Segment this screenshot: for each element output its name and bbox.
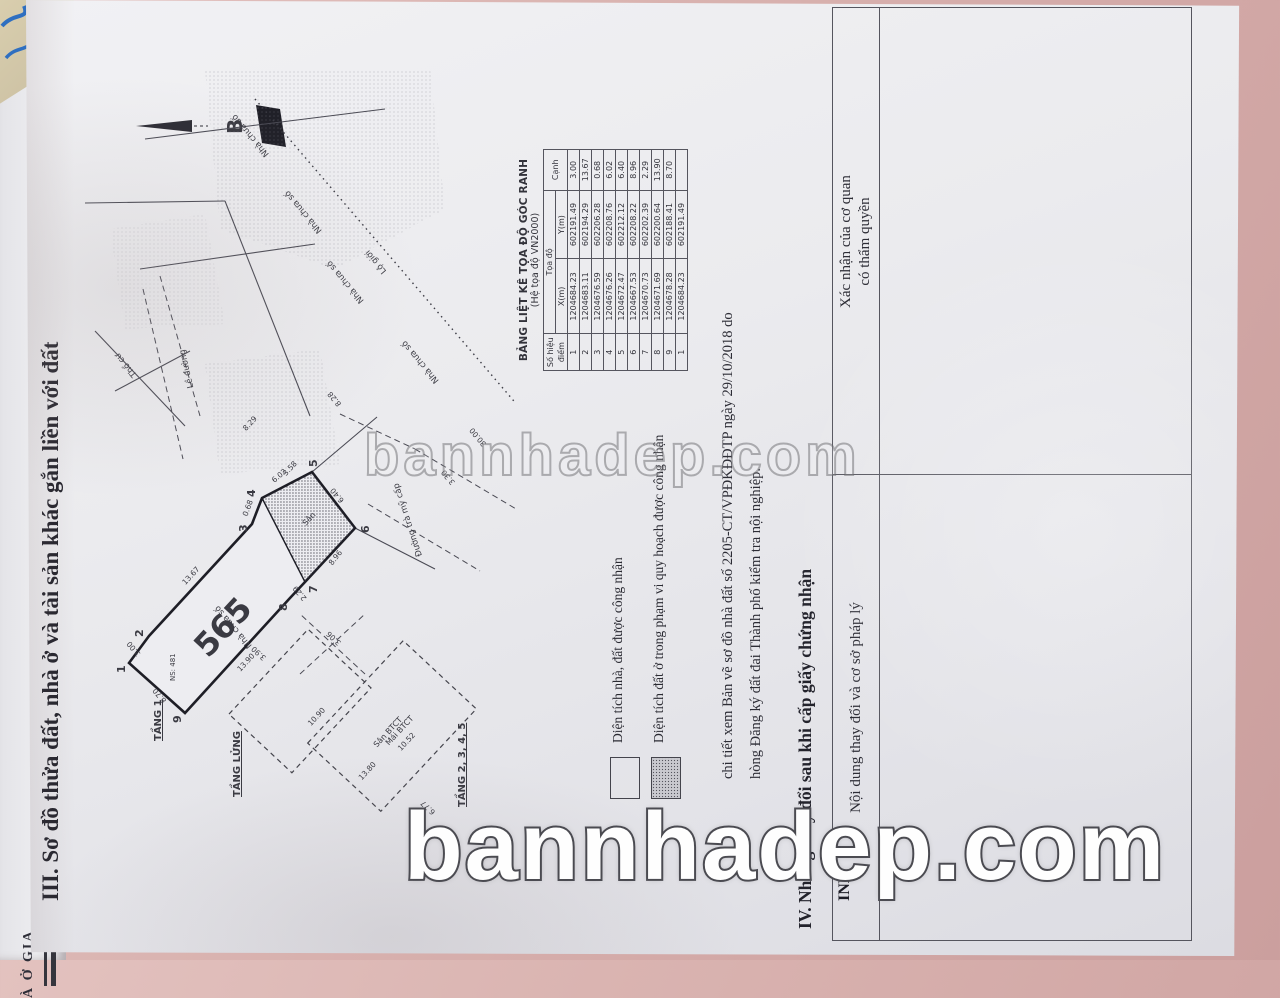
y-coordinate: 602206.28 — [592, 190, 604, 259]
y-coordinate: 602208.22 — [628, 190, 640, 259]
svg-text:7: 7 — [307, 585, 320, 593]
y-coordinate: 602202.39 — [640, 190, 652, 259]
y-coordinate: 602200.64 — [652, 190, 664, 259]
label-tang1: TẦNG 1 — [150, 699, 164, 741]
edge-length: 8.70 — [664, 150, 676, 191]
edge-length: 6.40 — [616, 150, 628, 191]
edge-length: 2.29 — [640, 150, 652, 191]
edge-length: 13.90 — [652, 150, 664, 191]
coordinate-row: 7 1204670.73 602202.39 2.29 — [640, 150, 652, 371]
edge-length: 8.96 — [628, 150, 640, 191]
svg-text:10.90: 10.90 — [306, 706, 327, 728]
edge-length: 6.02 — [604, 150, 616, 191]
x-coordinate: 1204672.47 — [616, 259, 628, 334]
section-iv-heading: IV. Những thay đổi sau khi cấp giấy chứn… — [795, 569, 816, 929]
edge-length: 0.68 — [592, 150, 604, 191]
label-nha-chua-so: Nhà chưa số — [324, 258, 367, 306]
coordinate-row: 8 1204671.69 602200.64 13.90 — [652, 150, 664, 371]
note-line2: hòng Đăng ký đất đai Thành phố kiểm tra … — [742, 119, 770, 779]
y-coordinate: 602191.49 — [676, 190, 688, 259]
point-id: 3 — [592, 334, 604, 371]
right-header-line2: có thẩm quyền — [856, 175, 875, 308]
coordinate-table-subtitle: (Hệ tọa độ VN2000) — [530, 149, 541, 371]
edge-length: 3.00 — [568, 150, 580, 191]
legend: Diện tích nhà, đất được công nhận Diện t… — [608, 379, 690, 799]
changes-col-right-header: Xác nhận của cơ quan có thẩm quyền — [833, 8, 879, 475]
svg-text:0.68: 0.68 — [241, 498, 255, 517]
point-id: 1 — [676, 334, 688, 371]
point-id: 8 — [652, 334, 664, 371]
x-coordinate: 1204678.28 — [664, 259, 676, 334]
coordinate-row: 5 1204672.47 602212.12 6.40 — [616, 150, 628, 371]
svg-text:6: 6 — [359, 525, 372, 533]
point-id: 2 — [580, 334, 592, 371]
svg-text:9: 9 — [171, 715, 184, 723]
svg-text:4: 4 — [245, 489, 258, 497]
col-header-y: Y(m) — [556, 190, 568, 259]
svg-text:3.06: 3.06 — [324, 629, 343, 647]
legend-swatch-plain — [610, 757, 640, 799]
coordinate-row: 9 1204678.28 602188.41 8.70 — [664, 150, 676, 371]
col-header-point: Số hiệu điểm — [544, 334, 568, 371]
label-ns481: NS: 481 — [169, 653, 177, 681]
point-id: 6 — [628, 334, 640, 371]
label-tho-cu: Thổ cư — [112, 350, 140, 380]
stipple-block — [205, 69, 445, 269]
svg-text:1: 1 — [115, 665, 128, 673]
edge-length: 13.67 — [580, 150, 592, 191]
svg-text:8: 8 — [277, 603, 290, 611]
coordinate-rows: 1 1204684.23 602191.49 3.00 2 1204683.11… — [568, 150, 688, 371]
legend-swatch-hatched — [651, 757, 681, 799]
certificate-page: III. Sơ đồ thửa đất, nhà ở và tài sản kh… — [30, 0, 1200, 949]
coordinate-row: 3 1204676.59 602206.28 0.68 — [592, 150, 604, 371]
y-coordinate: 602208.76 — [604, 190, 616, 259]
svg-text:3: 3 — [237, 524, 250, 532]
label-tang-lung: TẦNG LỬNG — [229, 731, 243, 797]
legend-item: Diện tích đất ở trong phạm vi quy hoạch … — [649, 379, 681, 799]
label-le-duong: Lề đường — [177, 348, 197, 389]
col-header-coord: Tọa độ — [544, 190, 556, 334]
coordinate-table-title: BẢNG LIỆT KÊ TỌA ĐỘ GÓC RANH — [518, 149, 530, 371]
section-iii-heading: III. Sơ đồ thửa đất, nhà ở và tài sản kh… — [38, 201, 64, 901]
point-id: 7 — [640, 334, 652, 371]
changes-table: Nội dung thay đổi và cơ sở pháp lý Xác n… — [832, 7, 1192, 941]
legend-item: Diện tích nhà, đất được công nhận — [608, 379, 640, 799]
label-alley: Đường trà mỹ cấp — [391, 482, 425, 558]
svg-text:5: 5 — [307, 459, 320, 467]
coordinate-row: 4 1204676.26 602208.76 6.02 — [604, 150, 616, 371]
coordinate-row: 1 1204684.23 602191.49 3.00 — [568, 150, 580, 371]
label-lo-gioi: Lộ giới — [363, 248, 389, 276]
col-header-x: X(m) — [556, 259, 568, 334]
point-id: 5 — [616, 334, 628, 371]
svg-text:6.77: 6.77 — [419, 799, 438, 817]
changes-col-left-header: Nội dung thay đổi và cơ sở pháp lý — [833, 475, 879, 940]
coordinate-row: 6 1204667.53 602208.22 8.96 — [628, 150, 640, 371]
label-nha-chua-so: Nhà chưa số — [399, 338, 442, 386]
point-id: 4 — [604, 334, 616, 371]
y-coordinate: 602191.49 — [568, 190, 580, 259]
coordinate-row: 1 1204684.23 602191.49 — [676, 150, 688, 371]
label-tang2345: TẦNG 2, 3, 4, 5 — [454, 723, 468, 807]
point-id: 1 — [568, 334, 580, 371]
cadastral-drawing: Sân BTCT Mái BTCT 565 Sân 1 2 3 4 5 6 7 … — [85, 69, 515, 869]
col-header-edge: Cạnh — [544, 150, 568, 191]
y-coordinate: 602212.12 — [616, 190, 628, 259]
document-paper: III. Sơ đồ thửa đất, nhà ở và tài sản kh… — [26, 0, 1244, 956]
x-coordinate: 1204684.23 — [568, 259, 580, 334]
stipple-block — [110, 214, 225, 329]
x-coordinate: 1204684.23 — [676, 259, 688, 334]
svg-text:2: 2 — [133, 629, 146, 637]
y-coordinate: 602188.41 — [664, 190, 676, 259]
table-column-divider — [833, 474, 1191, 475]
x-coordinate: 1204676.26 — [604, 259, 616, 334]
edge-length — [676, 150, 688, 191]
coordinate-table: BẢNG LIỆT KÊ TỌA ĐỘ GÓC RANH (Hệ tọa độ … — [518, 149, 688, 371]
y-coordinate: 602194.29 — [580, 190, 592, 259]
x-coordinate: 1204676.59 — [592, 259, 604, 334]
note-line1: chi tiết xem Bản vẽ sơ đồ nhà đất số 220… — [714, 119, 742, 779]
map-reference-note: chi tiết xem Bản vẽ sơ đồ nhà đất số 220… — [714, 119, 771, 779]
x-coordinate: 1204683.11 — [580, 259, 592, 334]
table-header-line — [879, 8, 880, 940]
stipple-block — [205, 349, 340, 474]
svg-text:3.30: 3.30 — [439, 468, 457, 487]
coordinate-row: 2 1204683.11 602194.29 13.67 — [580, 150, 592, 371]
x-coordinate: 1204671.69 — [652, 259, 664, 334]
right-header-line1: Xác nhận của cơ quan — [837, 175, 856, 308]
svg-text:13.80: 13.80 — [357, 760, 378, 782]
x-coordinate: 1204670.73 — [640, 259, 652, 334]
svg-text:30.00: 30.00 — [467, 426, 488, 448]
x-coordinate: 1204667.53 — [628, 259, 640, 334]
legend-label: Diện tích đất ở trong phạm vi quy hoạch … — [649, 413, 669, 743]
point-id: 9 — [664, 334, 676, 371]
legend-label: Diện tích nhà, đất được công nhận — [608, 379, 628, 743]
